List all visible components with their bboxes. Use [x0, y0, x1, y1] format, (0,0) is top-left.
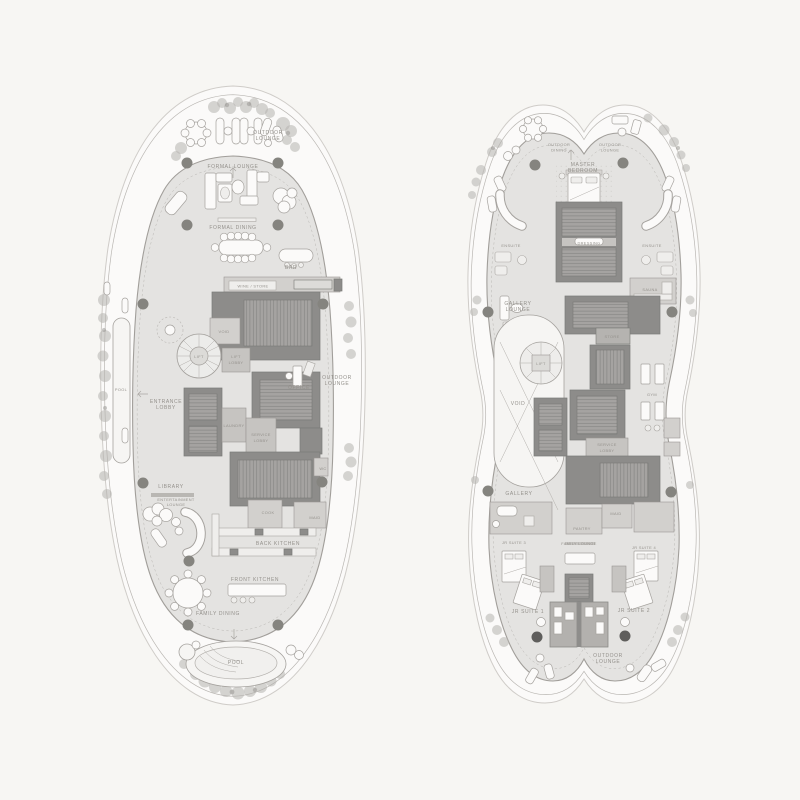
floor-plan-left: OUTDOOR LOUNGE FORMAL LOUNGE FORMAL DINI… [98, 86, 366, 705]
label-entertainment-lounge-2: LOUNGE [167, 502, 186, 507]
label-store: STORE [604, 334, 619, 339]
jr-bath-pods [550, 602, 608, 647]
label-pool-lap: POOL [115, 387, 128, 392]
family-dining-table [165, 570, 211, 616]
label-outdoor-lounge-right-2: LOUNGE [325, 381, 350, 387]
label-outdoor-lounge-top-2: LOUNGE [601, 148, 620, 153]
label-void: VOID [219, 329, 230, 334]
label-ensuite-right: ENSUITE [642, 243, 661, 248]
label-outdoor-lounge-top-1: OUTDOOR [599, 142, 621, 147]
core-twin [534, 398, 567, 456]
core-center [570, 390, 625, 440]
floor-plan-right: OUTDOOR DINING OUTDOOR LOUNGE MASTER BED… [468, 105, 700, 703]
label-bar: BAR [285, 265, 297, 271]
core-stair-bottom [565, 574, 593, 602]
jr2-closet [612, 566, 626, 592]
label-front-kitchen: FRONT KITCHEN [231, 577, 279, 583]
label-gallery-lounge-2: LOUNGE [506, 307, 531, 313]
label-jr-suite-2: JR SUITE 2 [618, 608, 650, 614]
label-service-lobby-1: SERVICE [251, 432, 271, 437]
label-back-kitchen: BACK KITCHEN [256, 541, 300, 547]
label-sauna: SAUNA [642, 287, 657, 292]
label-laundry: LAUNDRY [224, 423, 245, 428]
label-outdoor-dining-1: OUTDOOR [548, 142, 570, 147]
label-lift-lobby-2: LOBBY [229, 360, 244, 365]
floor-plans-canvas: OUTDOOR LOUNGE FORMAL LOUNGE FORMAL DINI… [0, 0, 800, 800]
label-void: VOID [511, 401, 526, 407]
core-stair-mid [590, 345, 630, 389]
label-service-lobby-1: SERVICE [597, 442, 617, 447]
wc-rooms-right [664, 418, 680, 456]
maid-room [602, 504, 632, 528]
jr2-chair [621, 618, 630, 627]
jr4-bathroom [634, 502, 674, 532]
label-pantry: PANTRY [573, 526, 591, 531]
label-jr-suite-1: JR SUITE 1 [512, 609, 544, 615]
label-maid: MAID [610, 511, 621, 516]
core-bottom [230, 452, 320, 506]
label-service-lobby-2: LOBBY [254, 438, 269, 443]
jr1-closet [540, 566, 554, 592]
label-gym: GYM [647, 392, 657, 397]
core-twin-left [184, 388, 222, 456]
label-ensuite-left: ENSUITE [501, 243, 520, 248]
label-library: LIBRARY [158, 484, 184, 490]
label-service-lobby-2: LOBBY [600, 448, 615, 453]
label-lift: LIFT [536, 361, 546, 366]
jr1-chair [537, 618, 546, 627]
label-cook: COOK [262, 510, 275, 515]
label-outdoor-dining-2: DINING [551, 148, 567, 153]
label-outdoor-lounge-bottom-2: LOUNGE [596, 659, 621, 665]
label-master-bedroom-2: BEDROOM [568, 168, 598, 174]
label-office: OFFICE [288, 385, 310, 391]
label-maid: MAID [309, 515, 320, 520]
label-lift-lobby-1: LIFT [231, 354, 241, 359]
label-gallery: GALLERY [505, 491, 532, 497]
label-wc: WC [319, 466, 326, 471]
label-dressing: DRESSING [577, 241, 600, 246]
label-wine-store: WINE / STORE [238, 284, 269, 289]
label-formal-dining: FORMAL DINING [209, 225, 256, 231]
label-family-lounge: FAMILY LOUNGE [561, 541, 597, 546]
label-jr-suite-4: JR SUITE 4 [632, 545, 657, 550]
label-lift: LIFT [194, 354, 204, 359]
label-outdoor-lounge-top-2: LOUNGE [256, 136, 281, 142]
label-formal-lounge: FORMAL LOUNGE [208, 164, 259, 170]
label-jr-suite-3: JR SUITE 3 [502, 540, 526, 545]
label-entrance-lobby-2: LOBBY [156, 405, 176, 411]
label-family-dining: FAMILY DINING [196, 611, 240, 617]
label-pool-main: POOL [228, 660, 244, 666]
